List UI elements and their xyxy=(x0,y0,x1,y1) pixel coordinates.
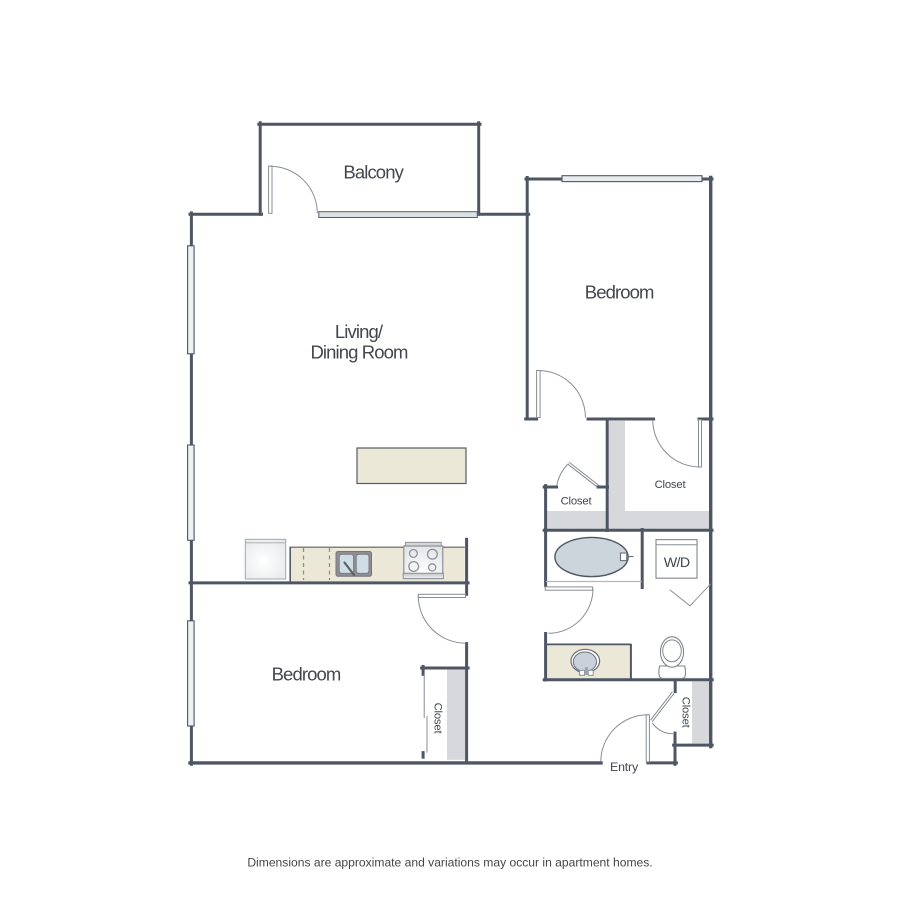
svg-text:Dimensions are approximate and: Dimensions are approximate and variation… xyxy=(247,855,652,869)
svg-text:Closet: Closet xyxy=(431,703,443,735)
svg-text:Bedroom: Bedroom xyxy=(585,281,654,302)
svg-text:Closet: Closet xyxy=(655,479,687,491)
svg-text:W/D: W/D xyxy=(664,555,690,571)
svg-text:Dining Room: Dining Room xyxy=(310,342,408,363)
svg-text:Living/: Living/ xyxy=(335,321,384,342)
svg-text:Balcony: Balcony xyxy=(343,162,404,183)
svg-text:Closet: Closet xyxy=(561,495,593,507)
svg-text:Entry: Entry xyxy=(610,760,639,774)
svg-text:Closet: Closet xyxy=(680,697,692,729)
svg-text:Bedroom: Bedroom xyxy=(272,664,341,685)
